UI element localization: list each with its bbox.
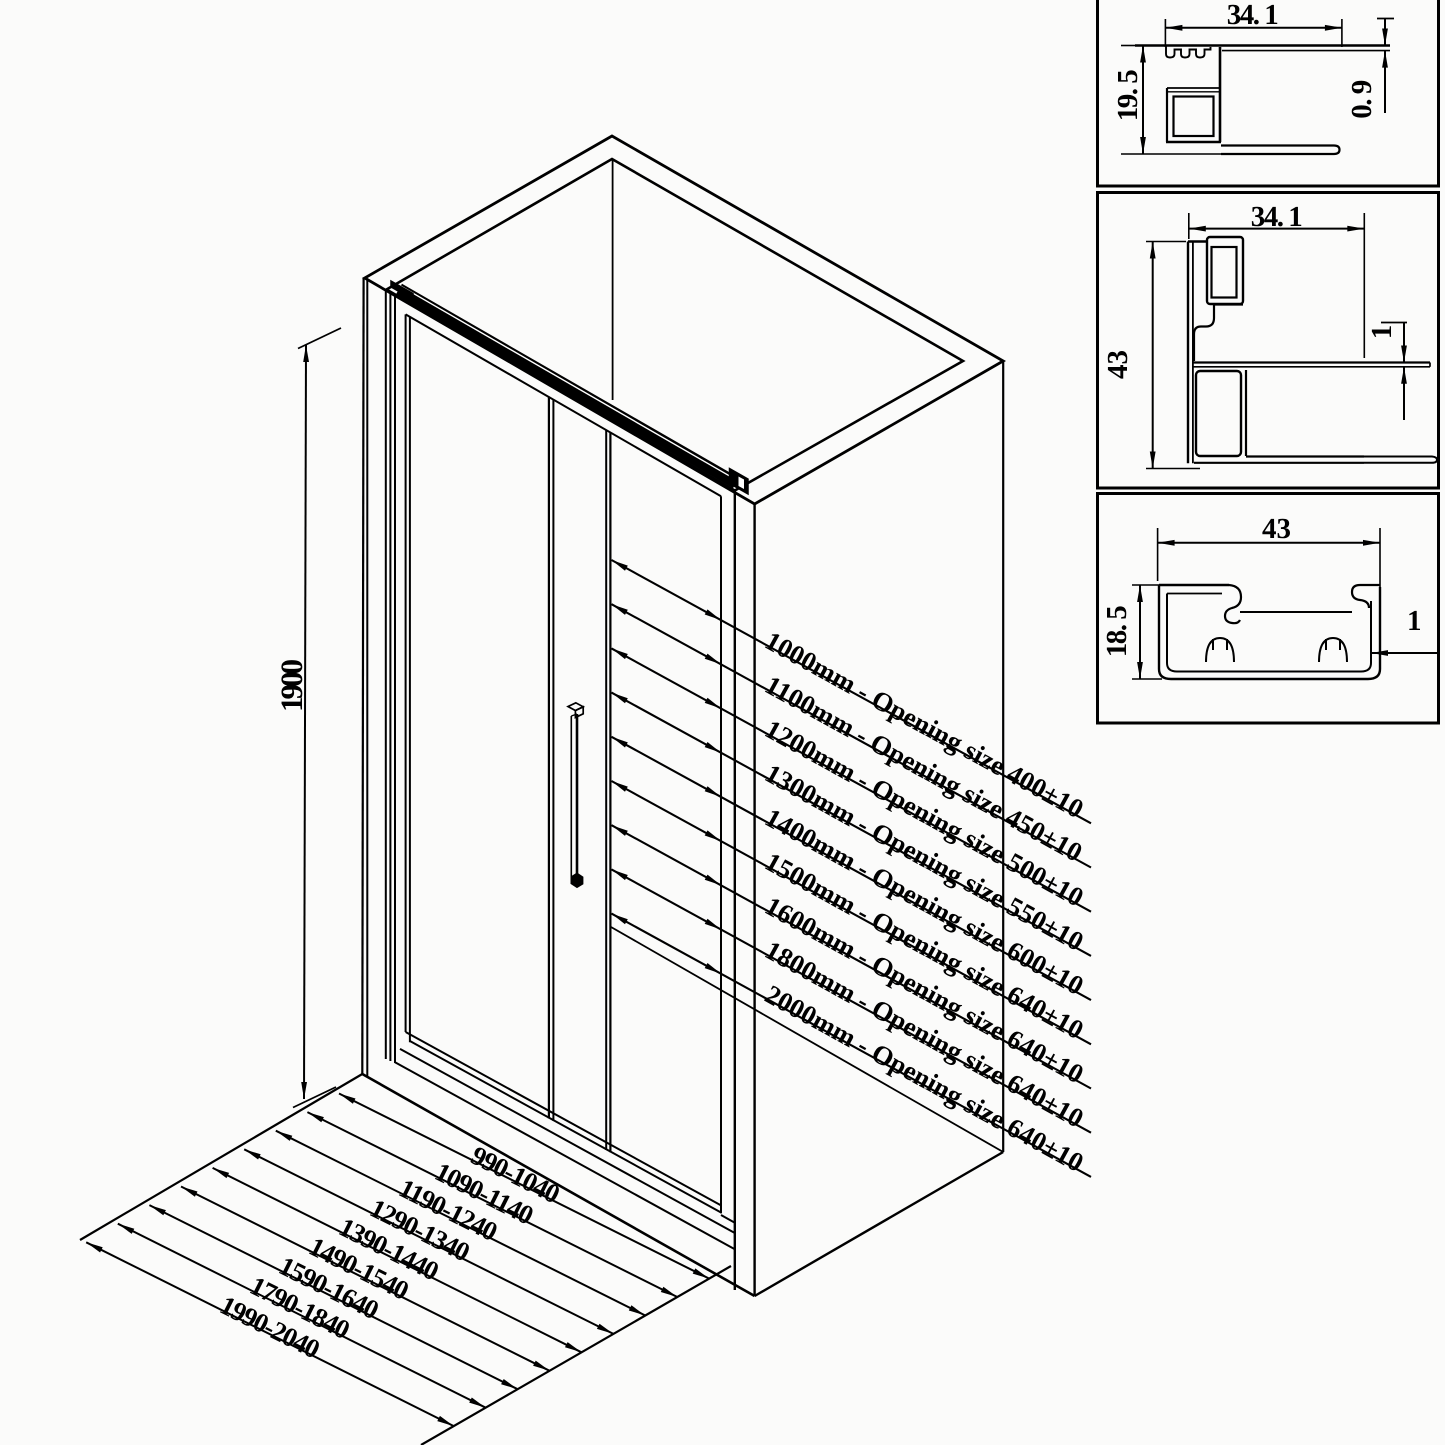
svg-text:19. 5: 19. 5 — [1112, 70, 1144, 122]
svg-text:34. 1: 34. 1 — [1251, 201, 1302, 233]
svg-text:43: 43 — [1102, 350, 1134, 379]
svg-text:1900: 1900 — [274, 660, 309, 713]
svg-text:43: 43 — [1262, 513, 1291, 545]
svg-text:34. 1: 34. 1 — [1227, 0, 1278, 31]
svg-text:0. 9: 0. 9 — [1346, 80, 1378, 119]
svg-text:1: 1 — [1407, 605, 1422, 637]
svg-text:1: 1 — [1366, 325, 1398, 340]
svg-text:18. 5: 18. 5 — [1101, 606, 1133, 658]
